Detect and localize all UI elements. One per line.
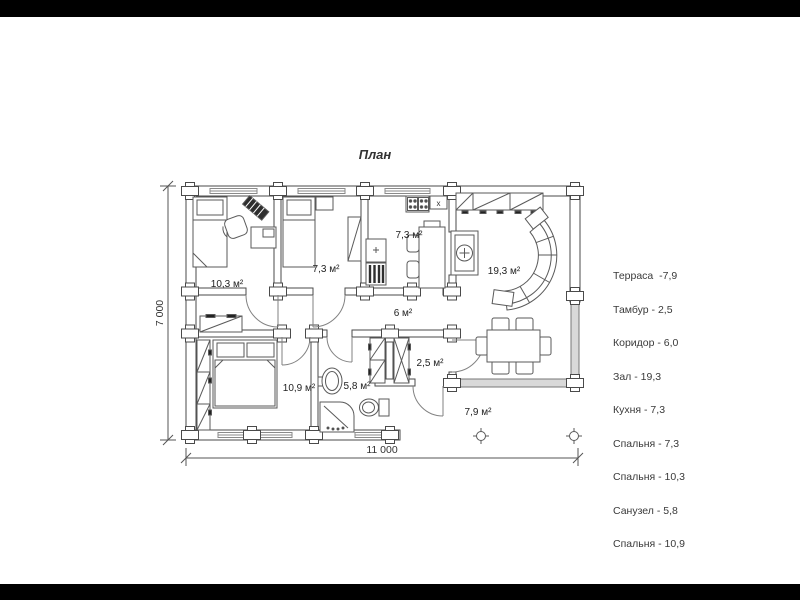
kitchen-stove [406, 196, 429, 212]
curved-sofa [492, 207, 557, 310]
bathroom-sink [318, 368, 342, 394]
room-label-vestibule: 2,5 м² [417, 358, 445, 369]
desk [251, 227, 276, 248]
single-bed-1 [193, 197, 227, 267]
door-arcs [246, 295, 484, 416]
wardrobe-column [197, 340, 212, 430]
room-label-corridor: 6 м² [394, 308, 413, 319]
shower [320, 402, 354, 432]
room-label-kitchen: 7,3 м² [396, 230, 424, 241]
room-label-bedroom2: 7,3 м² [313, 264, 341, 275]
bedside-cabinet [316, 197, 333, 210]
double-bed [213, 340, 277, 408]
desk-rug [243, 196, 269, 220]
dim-width-label: 11 000 [366, 444, 397, 456]
room-label-terrace: 7,9 м² [465, 407, 493, 418]
corridor-closet [200, 315, 242, 333]
room-label-bedroom3: 10,9 м² [283, 383, 316, 394]
toilet [360, 399, 390, 416]
terrace-posts [473, 428, 582, 444]
dim-height-label: 7 000 [154, 300, 166, 326]
kitchen-x-marker: x [437, 199, 441, 208]
room-label-bathroom: 5,8 м² [344, 381, 372, 392]
cabinet-row [456, 193, 543, 214]
fireplace-stove [451, 231, 478, 275]
kitchen-sink [366, 239, 386, 262]
single-bed-2 [283, 197, 315, 267]
floor-plan-drawing: 11 000 7 000 10,3 м² 7,3 м² 7,3 м² 19,3 … [0, 0, 800, 600]
page: План Терраса -7,9 Тамбур - 2,5 Коридор -… [0, 0, 800, 600]
dining-table-set [476, 318, 551, 374]
room-label-bedroom1: 10,3 м² [211, 279, 244, 290]
kitchen-radiator [366, 263, 386, 285]
room-label-hall: 19,3 м² [488, 266, 521, 277]
wardrobe-bedroom2 [348, 217, 361, 261]
